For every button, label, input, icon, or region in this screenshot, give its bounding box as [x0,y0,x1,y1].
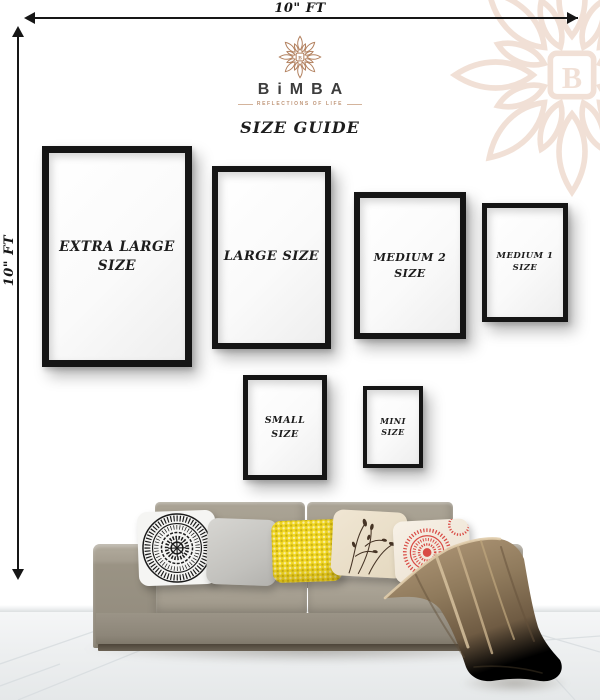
arrowhead-up-icon [12,26,24,37]
frame-label: SMALLSIZE [265,414,306,441]
brand-tagline: REFLECTIONS OF LIFE [0,101,600,107]
frame-label: LARGE SIZE [224,248,319,266]
brand-tagline-text: REFLECTIONS OF LIFE [257,101,343,107]
size-guide-heading: SIZE GUIDE [0,118,600,137]
frame-large: LARGE SIZE [212,166,331,349]
frame-mat: LARGE SIZE [218,172,325,343]
top-dimension-label: 10" FT [0,1,600,16]
frame-medium-2: MEDIUM 2SIZE [354,192,466,339]
left-dimension-arrow [17,30,19,578]
frame-medium-1: MEDIUM 1SIZE [482,203,568,322]
pillow-plain-gray [206,518,278,586]
frame-label: MINISIZE [380,416,406,438]
frame-mini: MINISIZE [363,386,423,468]
top-dimension-arrow [28,17,578,19]
frame-mat: EXTRA LARGESIZE [49,153,185,360]
frame-extra-large: EXTRA LARGESIZE [42,146,192,367]
frame-mat: MEDIUM 1SIZE [487,208,563,317]
arrowhead-left-icon [24,12,35,24]
frame-label: EXTRA LARGESIZE [59,238,175,276]
left-dimension-label: 10" FT [2,235,17,286]
throw-blanket [356,497,582,697]
tagline-dash [347,104,362,105]
arrowhead-right-icon [567,12,578,24]
frame-mat: MINISIZE [367,390,419,464]
frame-mat: MEDIUM 2SIZE [360,198,460,333]
size-guide-poster: B 10" FT 10" FT [0,0,600,700]
tagline-dash [238,104,253,105]
frame-mat: SMALLSIZE [248,380,322,475]
brand-logo-flower-icon: B [277,34,323,80]
mandala-pattern-icon [137,510,218,587]
brand-block: B BiMBA REFLECTIONS OF LIFE SIZE GUIDE [0,34,600,137]
frame-label: MEDIUM 1SIZE [497,251,554,275]
pillow-black-white-mandala [137,510,218,587]
frame-label: MEDIUM 2SIZE [374,250,447,281]
brand-wordmark: BiMBA [0,81,600,99]
arrowhead-down-icon [12,569,24,580]
frame-small: SMALLSIZE [243,375,327,480]
brand-logo-letter: B [298,55,302,61]
